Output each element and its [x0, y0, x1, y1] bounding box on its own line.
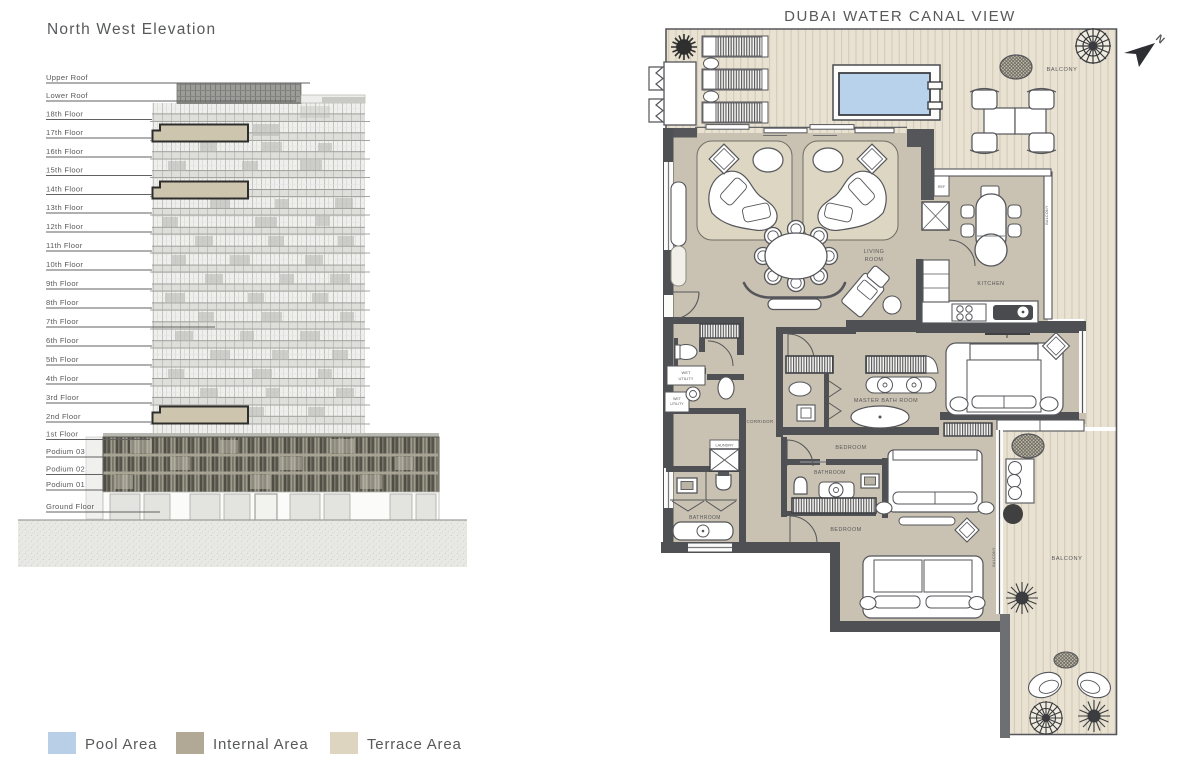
svg-text:5th Floor: 5th Floor — [46, 355, 79, 364]
svg-text:16th Floor: 16th Floor — [46, 147, 83, 156]
svg-text:Terrace Area: Terrace Area — [367, 736, 462, 753]
svg-text:13th Floor: 13th Floor — [46, 203, 83, 212]
svg-text:BATHROOM: BATHROOM — [689, 515, 721, 521]
svg-text:17th Floor: 17th Floor — [46, 128, 83, 137]
svg-text:BALCONY: BALCONY — [1047, 67, 1078, 73]
svg-text:1st Floor: 1st Floor — [46, 430, 78, 439]
svg-text:BALCONY: BALCONY — [1052, 556, 1083, 562]
svg-text:CORRIDOR: CORRIDOR — [746, 419, 773, 424]
svg-text:6th Floor: 6th Floor — [46, 336, 79, 345]
svg-text:Internal Area: Internal Area — [213, 736, 308, 753]
svg-text:3rd Floor: 3rd Floor — [46, 393, 79, 402]
svg-text:9th Floor: 9th Floor — [46, 279, 79, 288]
svg-text:UTILITY: UTILITY — [679, 376, 694, 381]
svg-text:BATHROOM: BATHROOM — [814, 470, 846, 476]
svg-text:10th Floor: 10th Floor — [46, 260, 83, 269]
svg-text:4th Floor: 4th Floor — [46, 374, 79, 383]
svg-text:Podium 02: Podium 02 — [46, 465, 85, 474]
svg-text:WET: WET — [673, 397, 682, 401]
svg-text:Lower Roof: Lower Roof — [46, 91, 88, 100]
svg-text:REF: REF — [938, 185, 946, 189]
svg-text:BALCONY: BALCONY — [992, 547, 996, 567]
svg-text:14th Floor: 14th Floor — [46, 185, 83, 194]
svg-text:KITCHEN: KITCHEN — [977, 281, 1004, 287]
svg-text:Upper Roof: Upper Roof — [46, 73, 88, 82]
svg-text:WET: WET — [682, 370, 691, 375]
svg-text:Podium 01: Podium 01 — [46, 480, 85, 489]
svg-text:7th Floor: 7th Floor — [46, 317, 79, 326]
svg-text:2nd Floor: 2nd Floor — [46, 412, 81, 421]
svg-text:11th Floor: 11th Floor — [46, 241, 83, 250]
svg-text:Ground Floor: Ground Floor — [46, 502, 95, 511]
svg-text:8th Floor: 8th Floor — [46, 298, 79, 307]
svg-text:LIVING: LIVING — [864, 249, 885, 255]
svg-text:Pool Area: Pool Area — [85, 736, 157, 753]
svg-text:LAUNDRY: LAUNDRY — [715, 444, 734, 448]
svg-text:DUBAI WATER CANAL VIEW: DUBAI WATER CANAL VIEW — [784, 8, 1016, 25]
svg-text:MASTER BATH ROOM: MASTER BATH ROOM — [854, 398, 918, 404]
svg-text:12th Floor: 12th Floor — [46, 222, 83, 231]
svg-text:18th Floor: 18th Floor — [46, 110, 83, 119]
svg-text:UTILITY: UTILITY — [670, 402, 684, 406]
svg-text:Podium 03: Podium 03 — [46, 447, 85, 456]
svg-text:15th Floor: 15th Floor — [46, 166, 83, 175]
svg-text:BALCONY: BALCONY — [1045, 205, 1049, 225]
svg-text:BEDROOM: BEDROOM — [830, 527, 861, 533]
svg-text:BEDROOM: BEDROOM — [835, 445, 866, 451]
svg-text:ROOM: ROOM — [865, 257, 884, 263]
svg-text:N: N — [1153, 32, 1167, 46]
svg-text:North West Elevation: North West Elevation — [47, 21, 216, 38]
